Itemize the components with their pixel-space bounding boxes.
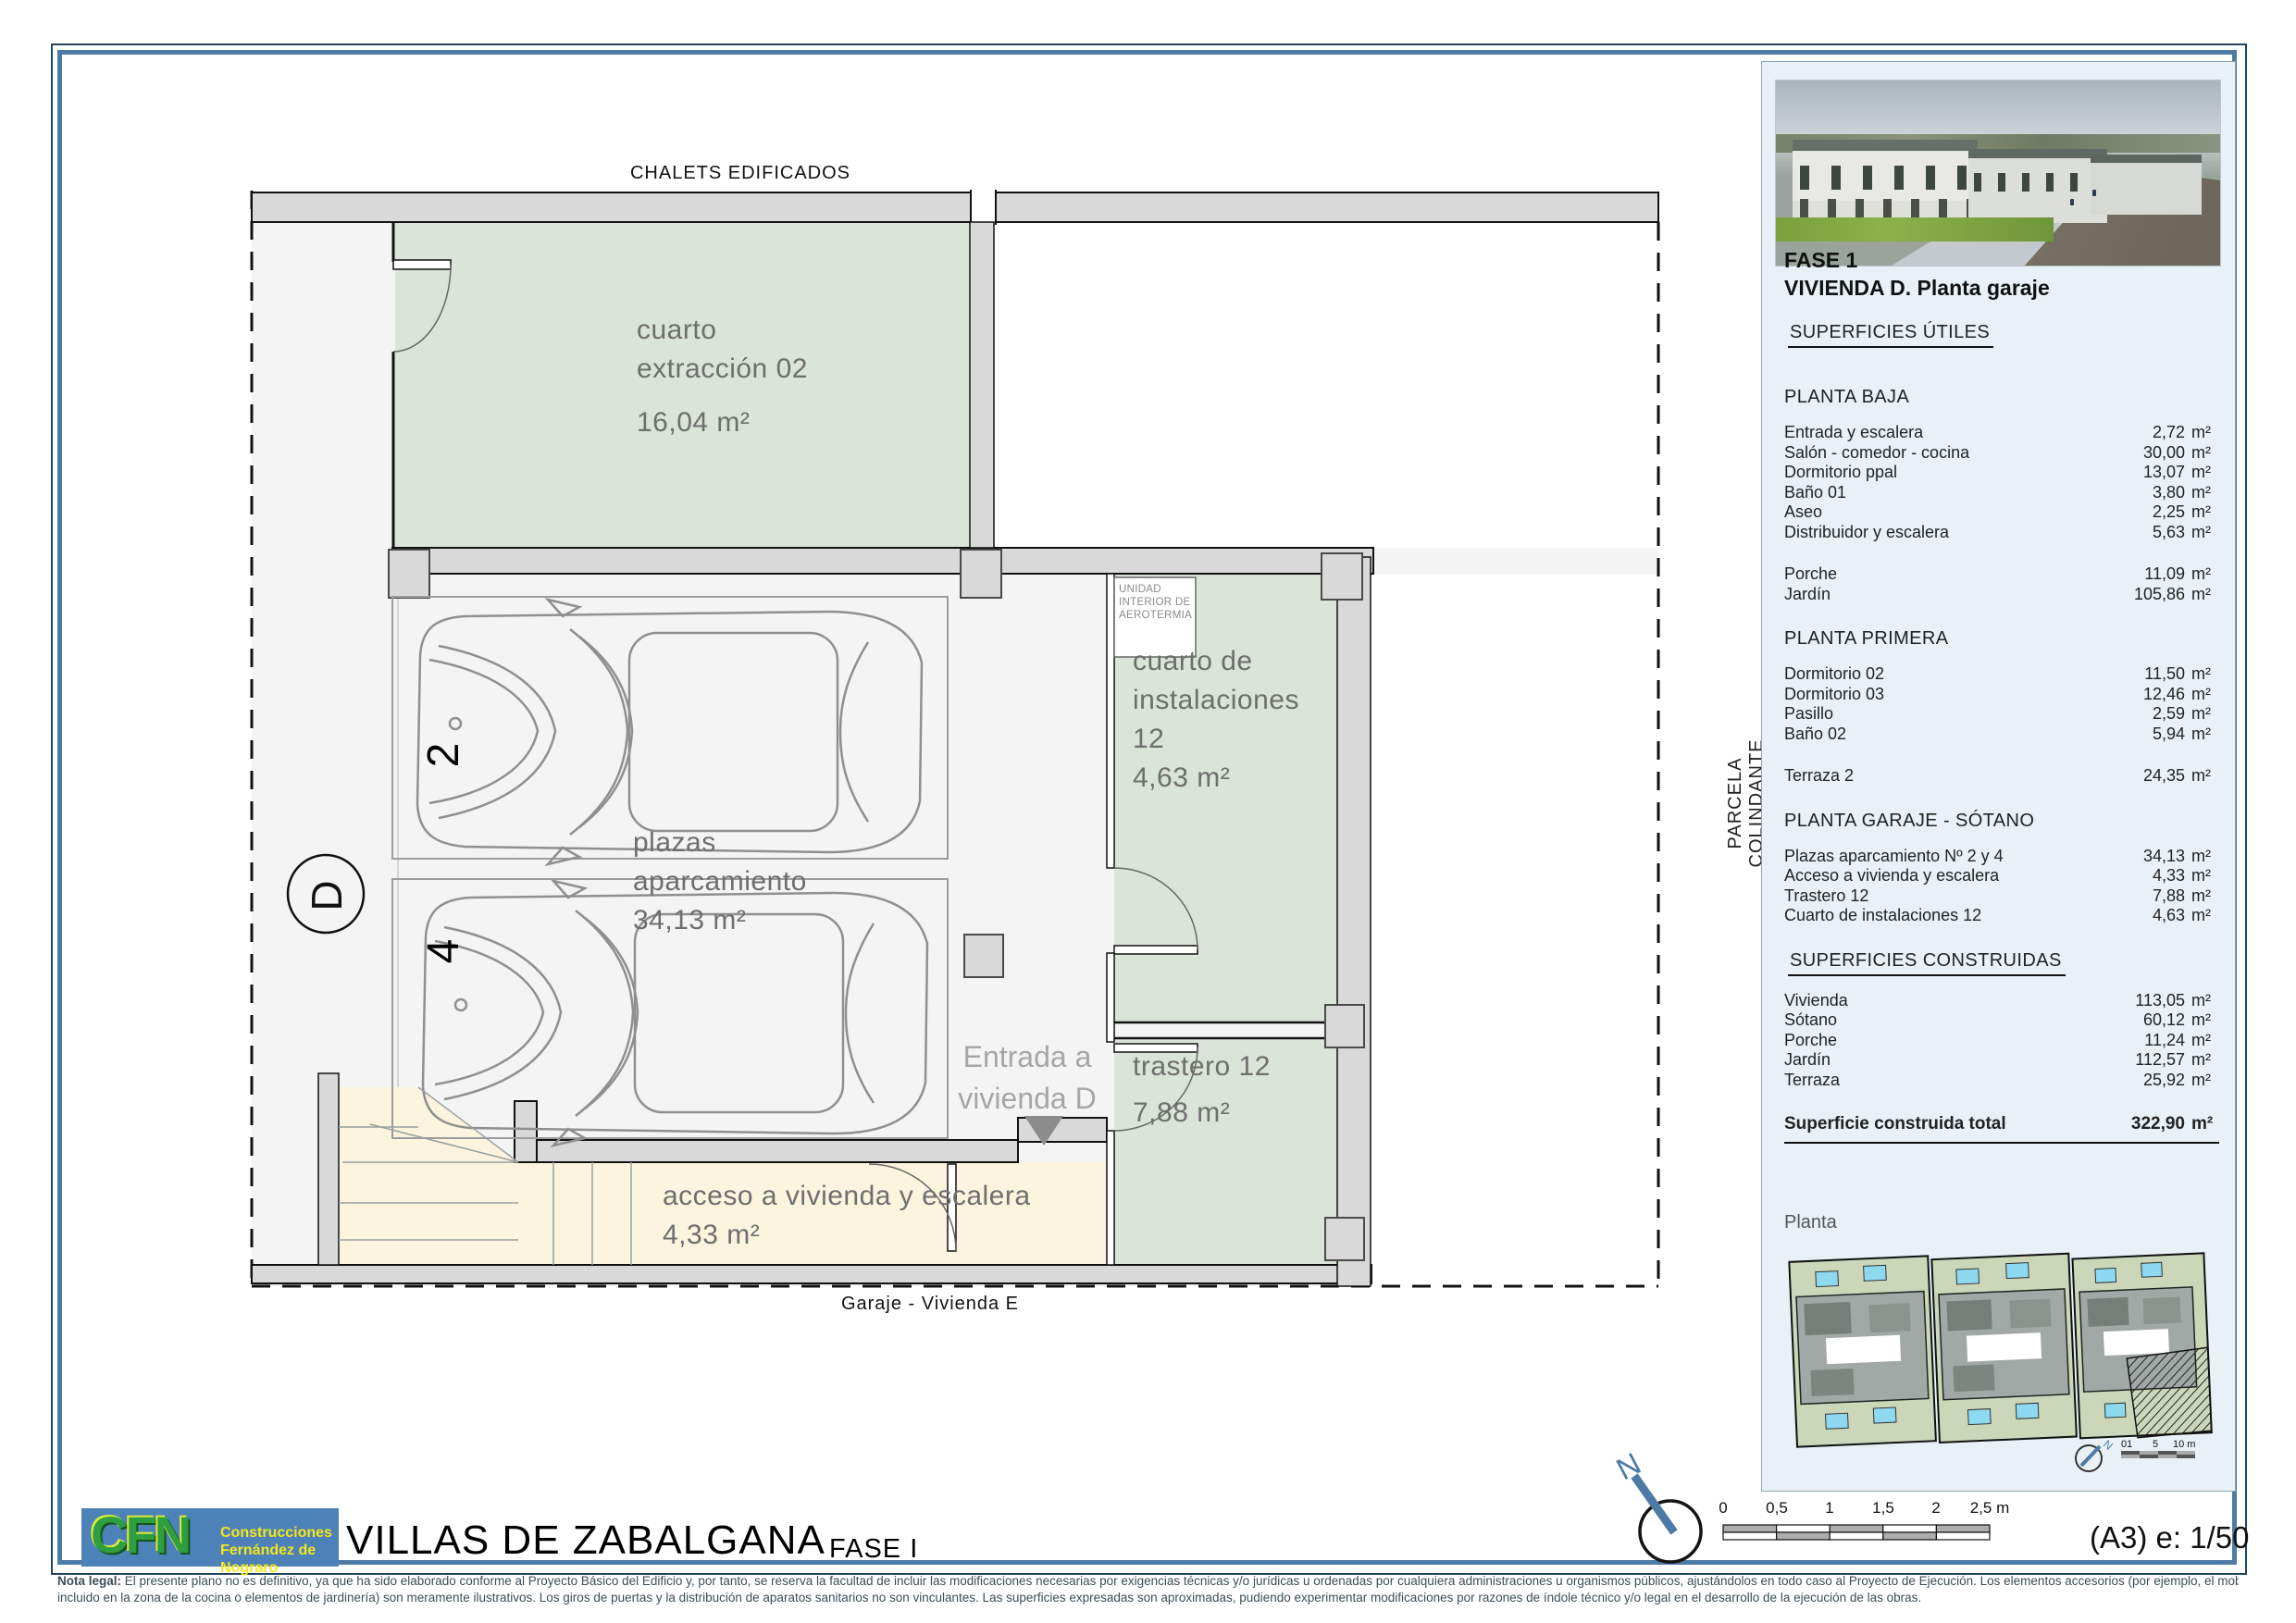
area-unit: m² xyxy=(2185,1031,2219,1051)
legal-line-1: Nota legal: El presente plano no es defi… xyxy=(57,1573,2239,1590)
room-acceso-name-line: acceso a vivienda y escalera xyxy=(663,1177,1031,1216)
room-parking-name-line: aparcamiento xyxy=(633,862,807,901)
minimap-blocks xyxy=(1789,1245,2212,1453)
area-label: Entrada y escalera xyxy=(1784,423,2111,443)
area-row: Dormitorio 0312,46m² xyxy=(1784,685,2219,705)
photo-sky xyxy=(1776,81,2220,134)
area-unit: m² xyxy=(2185,523,2219,543)
total-label: Superficie construida total xyxy=(1784,1114,2105,1134)
room-instalaciones-area: 4,63 m² xyxy=(1133,759,1299,798)
area-value: 7,88 xyxy=(2111,886,2185,907)
room-extraccion-area: 16,04 m² xyxy=(637,403,808,442)
minimap-scale-tick: 01 xyxy=(2121,1439,2132,1450)
legal-text-1: El presente plano no es definitivo, ya q… xyxy=(121,1574,2239,1588)
area-row: Sótano60,12m² xyxy=(1784,1010,2219,1031)
room-label-trastero: trastero 12 7,88 m² xyxy=(1133,1047,1271,1133)
area-label: Baño 02 xyxy=(1784,725,2111,745)
room-trastero-area: 7,88 m² xyxy=(1133,1094,1271,1133)
total-row: Superficie construida total322,90m² xyxy=(1784,1114,2219,1144)
area-row: Dormitorio ppal13,07m² xyxy=(1784,463,2219,483)
photo-building-3 xyxy=(2091,155,2202,215)
area-label: Pasillo xyxy=(1784,704,2111,725)
area-row: Baño 025,94m² xyxy=(1784,725,2219,745)
areas-section: PLANTA GARAJE - SÓTANOPlazas aparcamient… xyxy=(1784,811,2219,926)
areas-section: SUPERFICIES ÚTILES xyxy=(1784,322,2219,363)
area-label: Vivienda xyxy=(1784,991,2111,1011)
area-row: Vivienda113,05m² xyxy=(1784,991,2219,1011)
room-parking-name: plazasaparcamiento xyxy=(633,824,807,901)
aerotermia-note-text-line: AEROTERMIA xyxy=(1119,609,1195,622)
area-value: 24,35 xyxy=(2111,766,2185,787)
total-value: 322,90 xyxy=(2105,1114,2185,1134)
scalebar-tick-label: 2,5 m xyxy=(1962,1499,2017,1518)
area-unit: m² xyxy=(2185,847,2219,867)
area-unit: m² xyxy=(2185,906,2219,926)
stairs-side-wall xyxy=(318,1073,339,1265)
room-parking-name-line: plazas xyxy=(633,824,807,862)
area-row: Pasillo2,59m² xyxy=(1784,704,2219,725)
area-label: Acceso a vivienda y escalera xyxy=(1784,866,2111,886)
room-label-instalaciones: cuarto deinstalaciones12 4,63 m² xyxy=(1133,642,1299,798)
area-value: 3,80 xyxy=(2111,483,2185,503)
site-top-wall xyxy=(252,192,1658,222)
graphic-scalebar xyxy=(1723,1525,1990,1540)
area-row: Dormitorio 0211,50m² xyxy=(1784,664,2219,685)
areas-section: SUPERFICIES CONSTRUIDASVivienda113,05m²S… xyxy=(1784,950,2219,1091)
scalebar-tick-label: 0 xyxy=(1695,1499,1751,1518)
plan-sheet: CHALETS EDIFICADOS Garaje - Vivienda E P… xyxy=(0,0,2296,1623)
minimap-block-1 xyxy=(1789,1256,1936,1446)
area-label: Jardín xyxy=(1784,1050,2111,1071)
project-title: VILLAS DE ZABALGANA xyxy=(346,1518,825,1564)
panel-fase: FASE 1 xyxy=(1784,248,1857,273)
entrada-note-text-line: Entrada a xyxy=(925,1036,1129,1078)
area-value: 60,12 xyxy=(2111,1010,2185,1031)
area-label: Terraza xyxy=(1784,1071,2111,1091)
area-row: Distribuidor y escalera5,63m² xyxy=(1784,523,2219,543)
total-unit: m² xyxy=(2185,1114,2219,1134)
aerotermia-note-text-line: UNIDAD xyxy=(1119,583,1195,596)
photo-lawn xyxy=(1776,217,2054,242)
section-title: PLANTA PRIMERA xyxy=(1784,628,2219,650)
scalebar-tick-label: 0,5 xyxy=(1749,1499,1805,1518)
area-row: Trastero 127,88m² xyxy=(1784,886,2219,907)
area-row: Jardín105,86m² xyxy=(1784,585,2219,605)
logo-letters: CFN xyxy=(91,1505,189,1565)
area-value: 25,92 xyxy=(2111,1071,2185,1091)
aerotermia-note: UNIDADINTERIOR DEAEROTERMIA xyxy=(1119,583,1195,622)
area-label: Aseo xyxy=(1784,502,2111,523)
render-photo xyxy=(1775,80,2221,266)
area-label: Terraza 2 xyxy=(1784,766,2111,787)
area-value: 13,07 xyxy=(2111,463,2185,483)
area-label: Dormitorio 03 xyxy=(1784,685,2111,705)
areas-section: PLANTA BAJAEntrada y escalera2,72m²Salón… xyxy=(1784,387,2219,604)
context-label-parcela: PARCELA COLINDANTE xyxy=(1725,692,1749,914)
area-label: Cuarto de instalaciones 12 xyxy=(1784,906,2111,926)
project-fase: FASE I xyxy=(829,1534,918,1565)
area-value: 2,59 xyxy=(2111,704,2185,725)
area-row: Salón - comedor - cocina30,00m² xyxy=(1784,443,2219,464)
surface-areas-list: SUPERFICIES ÚTILESPLANTA BAJAEntrada y e… xyxy=(1784,322,2219,1144)
area-value: 112,57 xyxy=(2111,1050,2185,1071)
area-row: Cuarto de instalaciones 124,63m² xyxy=(1784,906,2219,926)
scalebar-tick-label: 1,5 xyxy=(1855,1499,1911,1518)
area-label: Trastero 12 xyxy=(1784,886,2111,907)
site-bottom-wall xyxy=(252,1265,1371,1283)
area-row: Porche11,24m² xyxy=(1784,1031,2219,1051)
context-label-chalets: CHALETS EDIFICADOS xyxy=(592,163,888,184)
minimap-hatched-area xyxy=(2127,1347,2212,1438)
area-value: 12,46 xyxy=(2111,685,2185,705)
area-unit: m² xyxy=(2185,502,2219,523)
area-value: 4,33 xyxy=(2111,866,2185,886)
area-row: Baño 013,80m² xyxy=(1784,483,2219,503)
area-unit: m² xyxy=(2185,704,2219,725)
area-unit: m² xyxy=(2185,1071,2219,1091)
area-unit: m² xyxy=(2185,866,2219,886)
area-row: Jardín112,57m² xyxy=(1784,1050,2219,1071)
area-label: Porche xyxy=(1784,564,2111,585)
logo-company-name-lines-line: Construcciones xyxy=(220,1524,339,1542)
minimap-compass-icon: N xyxy=(2076,1438,2116,1471)
context-label-garaje-e: Garaje - Vivienda E xyxy=(777,1294,1083,1315)
room-acceso-area: 4,33 m² xyxy=(663,1216,1031,1255)
aerotermia-note-text-line: INTERIOR DE xyxy=(1119,596,1195,609)
room-acceso-name: acceso a vivienda y escalera xyxy=(663,1177,1031,1216)
legal-note: Nota legal: El presente plano no es defi… xyxy=(57,1573,2239,1606)
area-row: Acceso a vivienda y escalera4,33m² xyxy=(1784,866,2219,886)
area-row: Aseo2,25m² xyxy=(1784,502,2219,523)
acceso-top-wall xyxy=(537,1140,1018,1162)
room-label-acceso: acceso a vivienda y escalera 4,33 m² xyxy=(663,1177,1031,1255)
section-title: PLANTA GARAJE - SÓTANO xyxy=(1784,811,2219,832)
photo-cyclist xyxy=(2070,199,2074,205)
area-unit: m² xyxy=(2185,991,2219,1011)
room-instalaciones-name: cuarto deinstalaciones12 xyxy=(1133,642,1299,759)
photo-cyclist xyxy=(2092,190,2096,196)
area-label: Distribuidor y escalera xyxy=(1784,523,2111,543)
area-value: 5,63 xyxy=(2111,523,2185,543)
room-extraccion-name-line: extracción 02 xyxy=(637,350,808,389)
area-unit: m² xyxy=(2185,685,2219,705)
parking-spot-number-4: 4 xyxy=(418,925,470,977)
area-value: 4,63 xyxy=(2111,906,2185,926)
area-unit: m² xyxy=(2185,886,2219,907)
scalebar-tick-label: 1 xyxy=(1802,1499,1857,1518)
area-value: 105,86 xyxy=(2111,585,2185,605)
minimap-scale-tick: 5 xyxy=(2153,1439,2158,1450)
area-unit: m² xyxy=(2185,564,2219,585)
area-value: 11,50 xyxy=(2111,664,2185,685)
legal-line-2: incluido en la zona de la cocina o eleme… xyxy=(57,1590,2239,1606)
area-label: Jardín xyxy=(1784,585,2111,605)
room-trastero-name-line: trastero 12 xyxy=(1133,1047,1271,1086)
area-row: Plazas aparcamiento Nº 2 y 434,13m² xyxy=(1784,847,2219,867)
room-trastero-name: trastero 12 xyxy=(1133,1047,1271,1086)
sheet-scale-note: (A3) e: 1/50 xyxy=(2090,1520,2249,1555)
panel-title: VIVIENDA D. Planta garaje xyxy=(1784,276,2050,301)
unit-letter: D xyxy=(302,873,350,918)
scalebar-tick-label: 2 xyxy=(1908,1499,1964,1518)
area-unit: m² xyxy=(2185,725,2219,745)
minimap-scalebar: 01 5 10 m xyxy=(2121,1439,2195,1458)
room-instalaciones-name-line: instalaciones xyxy=(1133,681,1299,720)
area-value: 34,13 xyxy=(2111,847,2185,867)
section-title: PLANTA BAJA xyxy=(1784,387,2219,408)
north-compass-icon xyxy=(1634,1476,1701,1562)
room-instalaciones-name-line: cuarto de xyxy=(1133,642,1299,681)
entrada-note: Entrada avivienda D xyxy=(925,1036,1129,1120)
area-value: 113,05 xyxy=(2111,991,2185,1011)
area-unit: m² xyxy=(2185,766,2219,787)
room-extraccion-name: cuartoextracción 02 xyxy=(637,311,808,389)
area-unit: m² xyxy=(2185,585,2219,605)
area-label: Sótano xyxy=(1784,1010,2111,1031)
area-label: Baño 01 xyxy=(1784,483,2111,503)
area-unit: m² xyxy=(2185,483,2219,503)
area-label: Dormitorio ppal xyxy=(1784,463,2111,483)
company-logo: CFN ConstruccionesFernández de Nograro xyxy=(81,1508,339,1567)
area-unit: m² xyxy=(2185,1050,2219,1071)
area-unit: m² xyxy=(2185,463,2219,483)
photo-building-2-windows xyxy=(1974,173,2102,192)
minimap-scale-tick: 10 m xyxy=(2173,1439,2195,1450)
logo-company-name-lines-line: Fernández de Nograro xyxy=(220,1542,339,1577)
room-instalaciones-name-line: 12 xyxy=(1133,720,1299,759)
area-unit: m² xyxy=(2185,1010,2219,1031)
legal-text-2: incluido en la zona de la cocina o eleme… xyxy=(57,1591,1921,1604)
area-row: Terraza 224,35m² xyxy=(1784,766,2219,787)
area-value: 2,72 xyxy=(2111,423,2185,443)
section-title: SUPERFICIES CONSTRUIDAS xyxy=(1788,950,2066,976)
area-value: 2,25 xyxy=(2111,502,2185,523)
minimap-north-label: N xyxy=(2101,1438,2116,1453)
entrada-note-text-line: vivienda D xyxy=(925,1078,1129,1120)
photo-building-1-windows xyxy=(1800,166,1970,190)
room-extraccion-name-line: cuarto xyxy=(637,311,808,350)
area-value: 5,94 xyxy=(2111,725,2185,745)
minimap-title: Planta xyxy=(1784,1212,1837,1233)
room-label-parking: plazasaparcamiento 34,13 m² xyxy=(633,824,807,940)
parking-spot-number-2: 2 xyxy=(418,729,470,781)
area-unit: m² xyxy=(2185,423,2219,443)
area-row: Terraza25,92m² xyxy=(1784,1071,2219,1091)
area-unit: m² xyxy=(2185,443,2219,464)
logo-company-name: ConstruccionesFernández de Nograro xyxy=(220,1524,339,1577)
extraccion-right-wall xyxy=(970,222,994,548)
minimap-block-2 xyxy=(1931,1254,2076,1443)
aerotermia-note-text: UNIDADINTERIOR DEAEROTERMIA xyxy=(1119,583,1195,622)
site-minimap: N 01 5 10 m xyxy=(1779,1245,2223,1482)
room-parking-area: 34,13 m² xyxy=(633,901,807,940)
right-wall xyxy=(1337,557,1371,1286)
area-value: 11,09 xyxy=(2111,564,2185,585)
area-row: Porche11,09m² xyxy=(1784,564,2219,585)
area-label: Dormitorio 02 xyxy=(1784,664,2111,685)
areas-section: PLANTA PRIMERADormitorio 0211,50m²Dormit… xyxy=(1784,628,2219,787)
garage-top-wall xyxy=(392,548,1373,574)
room-label-extraccion: cuartoextracción 02 16,04 m² xyxy=(637,311,808,442)
area-label: Plazas aparcamiento Nº 2 y 4 xyxy=(1784,847,2111,867)
area-label: Porche xyxy=(1784,1031,2111,1051)
logo-company-name-lines: ConstruccionesFernández de Nograro xyxy=(220,1524,339,1577)
legal-label: Nota legal: xyxy=(57,1574,121,1588)
minimap-block-3 xyxy=(2072,1253,2211,1440)
area-value: 30,00 xyxy=(2111,443,2185,464)
entrada-note-text: Entrada avivienda D xyxy=(925,1036,1129,1120)
area-label: Salón - comedor - cocina xyxy=(1784,443,2111,464)
section-title: SUPERFICIES ÚTILES xyxy=(1788,322,1993,348)
area-unit: m² xyxy=(2185,664,2219,685)
area-value: 11,24 xyxy=(2111,1031,2185,1051)
area-row: Entrada y escalera2,72m² xyxy=(1784,423,2219,443)
